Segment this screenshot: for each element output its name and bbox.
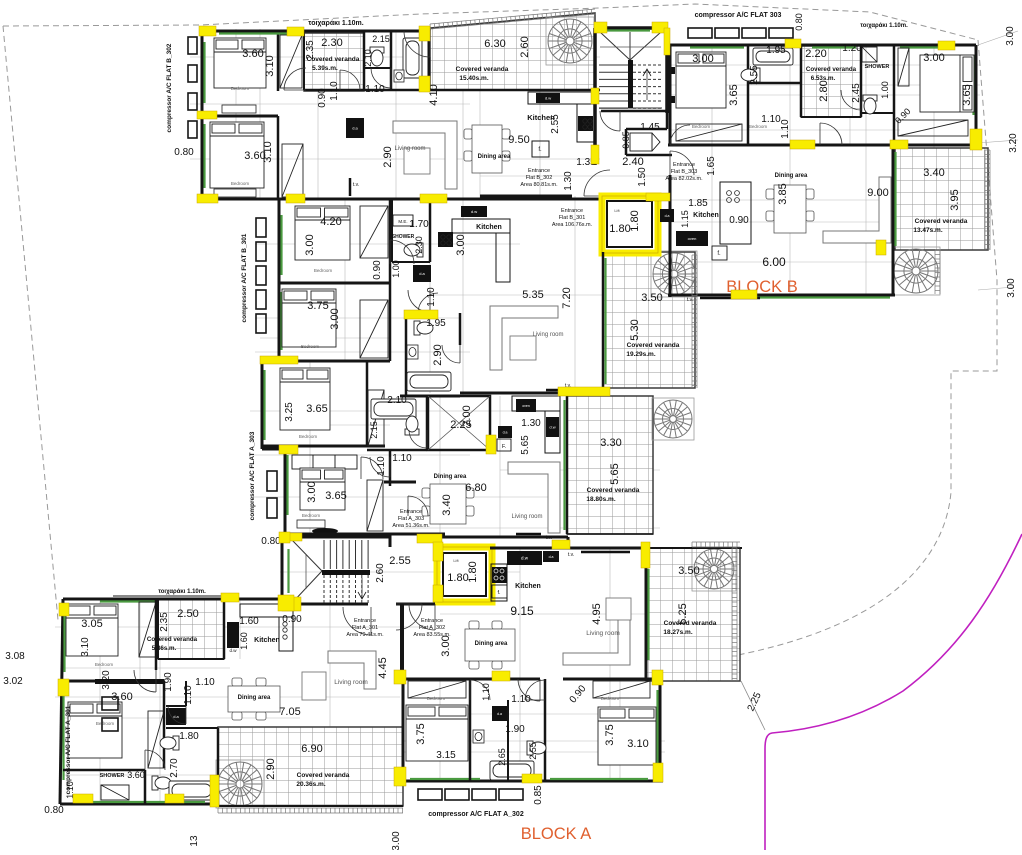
svg-text:1.60: 1.60: [239, 616, 259, 627]
svg-text:3.75: 3.75: [307, 300, 328, 312]
svg-text:9.00: 9.00: [867, 187, 888, 199]
svg-text:Bedroom: Bedroom: [692, 124, 711, 129]
svg-text:f.: f.: [717, 251, 721, 257]
svg-text:3.60: 3.60: [242, 48, 263, 60]
svg-text:3.00: 3.00: [692, 53, 713, 65]
svg-text:1.30: 1.30: [521, 418, 541, 429]
svg-text:SHOWER: SHOWER: [392, 234, 415, 240]
svg-text:d.a: d.a: [665, 214, 670, 218]
svg-text:Kitchen: Kitchen: [515, 583, 541, 590]
svg-text:3.65: 3.65: [325, 490, 346, 502]
svg-text:2.10: 2.10: [363, 49, 373, 67]
svg-text:3.40: 3.40: [923, 167, 944, 179]
svg-text:3.05: 3.05: [81, 618, 102, 630]
svg-text:d.a: d.a: [419, 271, 425, 276]
svg-text:Bedroom: Bedroom: [301, 344, 320, 349]
svg-text:0.80: 0.80: [174, 147, 194, 158]
svg-text:3.95: 3.95: [949, 189, 961, 210]
svg-text:τοιχαράκι 1.10m.: τοιχαράκι 1.10m.: [158, 589, 206, 595]
svg-text:1.10: 1.10: [329, 81, 340, 101]
svg-text:0.90: 0.90: [729, 215, 749, 226]
svg-text:f.: f.: [497, 590, 501, 596]
svg-text:3.40: 3.40: [441, 494, 453, 515]
svg-text:2.60: 2.60: [375, 563, 386, 583]
svg-text:6.90: 6.90: [301, 743, 322, 755]
svg-text:2.40: 2.40: [622, 156, 643, 168]
svg-text:Dining area: Dining area: [238, 695, 271, 701]
svg-text:7.20: 7.20: [561, 287, 573, 308]
svg-text:3.00: 3.00: [391, 831, 402, 850]
svg-text:Lift: Lift: [614, 208, 620, 213]
svg-text:2.30: 2.30: [321, 37, 342, 49]
svg-text:compressor A/C FLAT A_303: compressor A/C FLAT A_303: [249, 431, 256, 520]
svg-text:2.50: 2.50: [177, 608, 198, 620]
svg-text:compressor A/C FLAT B_301: compressor A/C FLAT B_301: [241, 233, 248, 322]
svg-text:4.95: 4.95: [591, 603, 603, 624]
svg-text:1.95: 1.95: [426, 318, 446, 329]
svg-text:3.08: 3.08: [5, 651, 25, 662]
svg-text:1.10: 1.10: [511, 694, 531, 705]
svg-text:d.w: d.w: [549, 425, 555, 430]
svg-text:Covered veranda: Covered veranda: [307, 56, 360, 63]
svg-text:d.w: d.w: [229, 648, 237, 653]
svg-text:τοιχαράκι 1.10m.: τοιχαράκι 1.10m.: [860, 23, 908, 29]
svg-text:2.45: 2.45: [851, 83, 862, 103]
svg-text:Entrance: Entrance: [354, 618, 376, 624]
svg-text:0.80: 0.80: [261, 536, 281, 547]
svg-text:3.65: 3.65: [306, 403, 327, 415]
svg-text:d.a: d.a: [497, 712, 502, 716]
svg-text:oven: oven: [522, 404, 530, 408]
svg-text:d.w: d.w: [521, 556, 529, 561]
svg-text:2.35: 2.35: [159, 612, 170, 632]
svg-text:0.85: 0.85: [533, 785, 544, 805]
svg-text:1.50: 1.50: [637, 167, 648, 187]
svg-text:Dining area: Dining area: [775, 173, 808, 179]
svg-text:Covered veranda: Covered veranda: [456, 66, 509, 73]
svg-text:2.90: 2.90: [382, 146, 394, 167]
svg-text:1.60: 1.60: [239, 632, 249, 650]
svg-text:Covered veranda: Covered veranda: [627, 342, 680, 349]
svg-text:3.65: 3.65: [961, 84, 973, 105]
svg-text:2.10: 2.10: [387, 395, 407, 406]
svg-text:compressor A/C FLAT A_302: compressor A/C FLAT A_302: [428, 811, 524, 818]
svg-text:t.v.: t.v.: [568, 552, 574, 558]
svg-text:1.95: 1.95: [766, 45, 786, 56]
svg-text:13: 13: [189, 835, 200, 847]
svg-text:2.00: 2.00: [461, 405, 473, 426]
svg-text:1.80: 1.80: [447, 572, 468, 584]
svg-text:3.00: 3.00: [1006, 278, 1017, 298]
svg-text:Entrance: Entrance: [400, 509, 422, 515]
svg-text:6.00: 6.00: [762, 255, 786, 269]
svg-text:3.20: 3.20: [101, 670, 112, 690]
svg-text:19.29s.m.: 19.29s.m.: [626, 351, 655, 358]
svg-text:1.10: 1.10: [392, 453, 412, 464]
svg-text:1.10: 1.10: [365, 84, 385, 95]
svg-text:15.40s.m.: 15.40s.m.: [459, 75, 488, 82]
svg-text:3.30: 3.30: [600, 437, 621, 449]
svg-text:Bedroom: Bedroom: [427, 696, 446, 701]
svg-text:t.v.: t.v.: [353, 182, 359, 188]
svg-text:5.35: 5.35: [522, 289, 543, 301]
svg-text:1.90: 1.90: [505, 724, 525, 735]
svg-text:1.10: 1.10: [426, 287, 437, 307]
svg-text:4.20: 4.20: [320, 216, 341, 228]
svg-text:Flat B_302: Flat B_302: [526, 175, 553, 181]
svg-text:2.15: 2.15: [372, 34, 390, 44]
svg-text:3.00: 3.00: [440, 635, 452, 656]
svg-text:2.15: 2.15: [369, 421, 379, 439]
svg-text:Living room: Living room: [532, 332, 563, 338]
svg-text:Lift: Lift: [453, 558, 459, 563]
svg-text:0.90: 0.90: [372, 260, 383, 280]
svg-text:5.65: 5.65: [609, 463, 621, 484]
svg-text:BLOCK A: BLOCK A: [521, 825, 592, 843]
svg-text:3.60: 3.60: [127, 770, 145, 780]
svg-text:3.00: 3.00: [1005, 26, 1016, 46]
svg-text:Flat A_303: Flat A_303: [398, 516, 424, 522]
svg-text:oven: oven: [688, 236, 697, 241]
svg-text:Covered veranda: Covered veranda: [297, 772, 350, 779]
svg-text:1.10: 1.10: [183, 685, 194, 705]
svg-text:Entrance: Entrance: [528, 168, 550, 174]
svg-text:5.30: 5.30: [629, 319, 641, 340]
svg-text:9.50: 9.50: [508, 134, 529, 146]
svg-text:Covered veranda: Covered veranda: [587, 487, 640, 494]
svg-text:5.86s.m.: 5.86s.m.: [152, 645, 177, 652]
svg-text:Kitchen: Kitchen: [527, 113, 555, 122]
svg-text:3.00: 3.00: [455, 234, 467, 255]
svg-text:Dining area: Dining area: [434, 474, 467, 480]
svg-text:2.55: 2.55: [528, 742, 538, 760]
svg-text:1.45: 1.45: [640, 122, 660, 133]
svg-text:2.20: 2.20: [805, 48, 826, 60]
svg-text:Dining area: Dining area: [475, 641, 508, 647]
svg-text:Covered veranda: Covered veranda: [915, 218, 968, 225]
svg-text:Living room: Living room: [586, 630, 620, 637]
svg-text:Bedroom: Bedroom: [96, 721, 115, 726]
svg-text:Bedroom: Bedroom: [231, 181, 250, 186]
svg-text:1.10: 1.10: [481, 683, 491, 701]
svg-text:3.85: 3.85: [777, 183, 789, 204]
svg-text:1.65: 1.65: [706, 156, 717, 176]
svg-text:3.00: 3.00: [329, 308, 341, 329]
svg-text:2.70: 2.70: [169, 758, 180, 778]
svg-text:Entrance: Entrance: [421, 618, 443, 624]
svg-text:compressor A/C FLAT B_302: compressor A/C FLAT B_302: [166, 43, 173, 132]
svg-text:1.90: 1.90: [163, 672, 174, 692]
svg-text:3.65: 3.65: [728, 84, 740, 105]
svg-text:1.80: 1.80: [629, 210, 641, 231]
svg-text:2.55: 2.55: [389, 555, 410, 567]
svg-text:Living room: Living room: [394, 146, 425, 152]
svg-text:0.85: 0.85: [621, 131, 631, 149]
svg-text:2.90: 2.90: [432, 344, 444, 365]
svg-text:2.55: 2.55: [749, 65, 760, 85]
svg-text:18.80s.m.: 18.80s.m.: [586, 496, 615, 503]
svg-text:Bedroom: Bedroom: [749, 124, 768, 129]
svg-text:6.53s.m.: 6.53s.m.: [811, 75, 836, 82]
svg-text:Flat B_301: Flat B_301: [559, 215, 586, 221]
svg-text:5.39s.m.: 5.39s.m.: [312, 65, 338, 72]
svg-text:1.20: 1.20: [842, 43, 862, 54]
svg-text:Covered veranda: Covered veranda: [147, 636, 198, 643]
svg-text:Entrance: Entrance: [561, 208, 583, 214]
svg-text:3.02: 3.02: [3, 676, 23, 687]
svg-text:Living room: Living room: [334, 679, 368, 686]
svg-text:2.60: 2.60: [519, 36, 531, 57]
svg-text:2.30: 2.30: [414, 236, 424, 254]
svg-text:Covered veranda: Covered veranda: [806, 66, 857, 73]
svg-text:d.w: d.w: [471, 209, 477, 214]
svg-text:M.E.: M.E.: [398, 219, 407, 224]
svg-text:3.25: 3.25: [284, 402, 295, 422]
svg-text:τοιχαράκι 1.10m.: τοιχαράκι 1.10m.: [308, 20, 364, 27]
svg-text:F.: F.: [502, 444, 507, 450]
svg-text:1.85: 1.85: [688, 198, 708, 209]
svg-text:3.00: 3.00: [306, 481, 318, 502]
svg-text:Covered veranda: Covered veranda: [664, 620, 717, 627]
svg-text:1.00: 1.00: [880, 81, 890, 99]
svg-text:1.80: 1.80: [609, 223, 630, 235]
svg-text:Dining area: Dining area: [478, 154, 511, 160]
svg-text:2.65: 2.65: [497, 748, 507, 766]
svg-text:Bedroom: Bedroom: [601, 696, 620, 701]
svg-text:1.80: 1.80: [467, 561, 479, 582]
svg-text:Area 80.81s.m.: Area 80.81s.m.: [520, 182, 558, 188]
svg-text:0.90: 0.90: [317, 88, 328, 108]
svg-text:2.80: 2.80: [818, 80, 830, 101]
svg-text:3.50: 3.50: [678, 565, 699, 577]
svg-text:1.10: 1.10: [195, 677, 215, 688]
svg-text:0.90: 0.90: [282, 614, 302, 625]
svg-text:6.30: 6.30: [484, 38, 505, 50]
svg-text:Kitchen: Kitchen: [693, 212, 719, 219]
svg-text:20.36s.m.: 20.36s.m.: [296, 781, 325, 788]
svg-text:Kitchen: Kitchen: [476, 224, 502, 231]
svg-text:3.00: 3.00: [304, 234, 316, 255]
svg-text:1.30: 1.30: [563, 171, 574, 191]
svg-text:6.80: 6.80: [465, 482, 486, 494]
svg-text:13.47s.m.: 13.47s.m.: [913, 227, 942, 234]
svg-text:1.70: 1.70: [409, 219, 429, 230]
svg-text:Bedroom: Bedroom: [95, 662, 114, 667]
svg-text:3.75: 3.75: [604, 724, 616, 745]
svg-text:SHOWER: SHOWER: [865, 64, 890, 70]
svg-text:SHOWER: SHOWER: [100, 773, 125, 779]
svg-text:1.10: 1.10: [780, 119, 791, 139]
svg-text:Area 51.36s.m.: Area 51.36s.m.: [392, 523, 430, 529]
svg-text:d.w: d.w: [545, 96, 551, 101]
svg-text:0.80: 0.80: [794, 13, 804, 31]
svg-text:4.45: 4.45: [377, 657, 389, 678]
svg-text:f.: f.: [538, 147, 542, 153]
svg-text:3.00: 3.00: [923, 52, 944, 64]
svg-text:Bedroom: Bedroom: [299, 434, 318, 439]
svg-text:3.20: 3.20: [1008, 133, 1019, 153]
svg-text:Area 79.41s.m.: Area 79.41s.m.: [346, 632, 384, 638]
svg-text:1.15: 1.15: [680, 210, 690, 228]
svg-text:2.90: 2.90: [265, 758, 277, 779]
svg-text:0.80: 0.80: [44, 805, 64, 816]
svg-text:Bedroom: Bedroom: [314, 268, 333, 273]
svg-text:Area 106.76s.m.: Area 106.76s.m.: [552, 222, 593, 228]
svg-text:7.05: 7.05: [279, 706, 300, 718]
svg-text:compressor A/C FLAT A_301: compressor A/C FLAT A_301: [65, 705, 72, 794]
svg-text:d.a: d.a: [352, 126, 358, 131]
svg-text:d.a: d.a: [173, 714, 179, 719]
svg-text:Bedroom: Bedroom: [231, 86, 250, 91]
svg-text:3.10: 3.10: [264, 55, 276, 76]
svg-text:3.15: 3.15: [436, 750, 456, 761]
svg-text:1.00: 1.00: [391, 260, 401, 278]
svg-text:3.50: 3.50: [641, 292, 662, 304]
svg-text:3.10: 3.10: [262, 141, 274, 162]
svg-text:Living room: Living room: [511, 514, 542, 520]
svg-text:18.27s.m.: 18.27s.m.: [663, 629, 692, 636]
svg-text:d.a: d.a: [503, 431, 508, 435]
svg-text:compressor A/C FLAT 303: compressor A/C FLAT 303: [695, 12, 782, 19]
svg-text:5.65: 5.65: [520, 435, 531, 455]
svg-text:d.a: d.a: [549, 555, 554, 559]
svg-text:1.10: 1.10: [376, 456, 387, 476]
svg-text:t.v.: t.v.: [546, 535, 552, 541]
svg-text:9.15: 9.15: [510, 604, 534, 618]
svg-text:3.10: 3.10: [627, 738, 648, 750]
svg-text:1.80: 1.80: [179, 731, 199, 742]
svg-text:3.10: 3.10: [80, 637, 91, 657]
svg-text:Kitchen: Kitchen: [254, 637, 280, 644]
svg-text:Bedroom: Bedroom: [302, 513, 321, 518]
svg-text:3.75: 3.75: [415, 723, 427, 744]
